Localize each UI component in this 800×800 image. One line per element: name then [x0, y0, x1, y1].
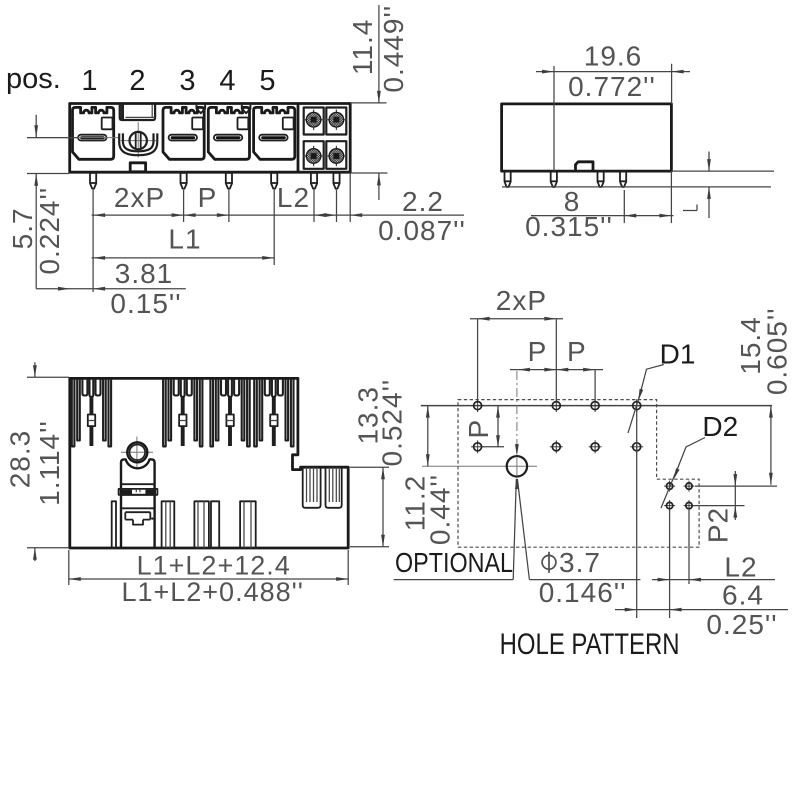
svg-text:P: P	[528, 336, 548, 367]
svg-text:4: 4	[219, 65, 235, 97]
svg-text:D1: D1	[660, 339, 696, 370]
svg-text:0.524'': 0.524''	[377, 379, 408, 467]
svg-text:P: P	[567, 336, 587, 367]
svg-text:L1+L2+0.488'': L1+L2+0.488''	[121, 577, 303, 607]
svg-text:0.449'': 0.449''	[378, 5, 409, 93]
svg-text:D2: D2	[702, 411, 738, 442]
svg-text:0.15'': 0.15''	[110, 288, 181, 319]
svg-text:L2: L2	[724, 552, 757, 583]
svg-text:2.2: 2.2	[402, 186, 444, 217]
svg-text:1.114'': 1.114''	[34, 420, 65, 506]
svg-text:3: 3	[179, 65, 195, 97]
svg-text:L1: L1	[168, 224, 201, 255]
svg-text:11.4: 11.4	[347, 19, 378, 75]
svg-text:HOLE PATTERN: HOLE PATTERN	[500, 628, 680, 661]
svg-text:L2: L2	[277, 182, 310, 213]
svg-text:P: P	[198, 182, 218, 213]
svg-text:28.3: 28.3	[5, 430, 36, 489]
svg-text:2xP: 2xP	[114, 182, 165, 213]
svg-text:1: 1	[81, 65, 97, 97]
svg-text:0.315'': 0.315''	[525, 211, 613, 242]
svg-text:0.44'': 0.44''	[425, 474, 456, 545]
svg-text:0.087'': 0.087''	[378, 215, 466, 246]
svg-text:3.81: 3.81	[115, 258, 174, 289]
svg-text:19.6: 19.6	[584, 41, 643, 72]
svg-text:6.4: 6.4	[722, 580, 764, 611]
svg-text:2xP: 2xP	[496, 285, 547, 316]
svg-text:3.7: 3.7	[559, 547, 601, 578]
svg-text:5: 5	[259, 65, 275, 97]
svg-text:P: P	[463, 419, 494, 439]
svg-text:0.605'': 0.605''	[761, 307, 792, 395]
svg-text:0.772'': 0.772''	[568, 71, 656, 102]
svg-text:P2: P2	[702, 507, 733, 543]
svg-text:L1+L2+12.4: L1+L2+12.4	[137, 551, 291, 581]
svg-text:0.146'': 0.146''	[539, 577, 627, 608]
svg-text:0.224'': 0.224''	[34, 187, 65, 275]
svg-text:pos.: pos.	[6, 63, 61, 95]
svg-text:2: 2	[129, 65, 145, 97]
svg-text:0.25'': 0.25''	[706, 609, 777, 640]
svg-text:OPTIONAL: OPTIONAL	[395, 547, 513, 578]
